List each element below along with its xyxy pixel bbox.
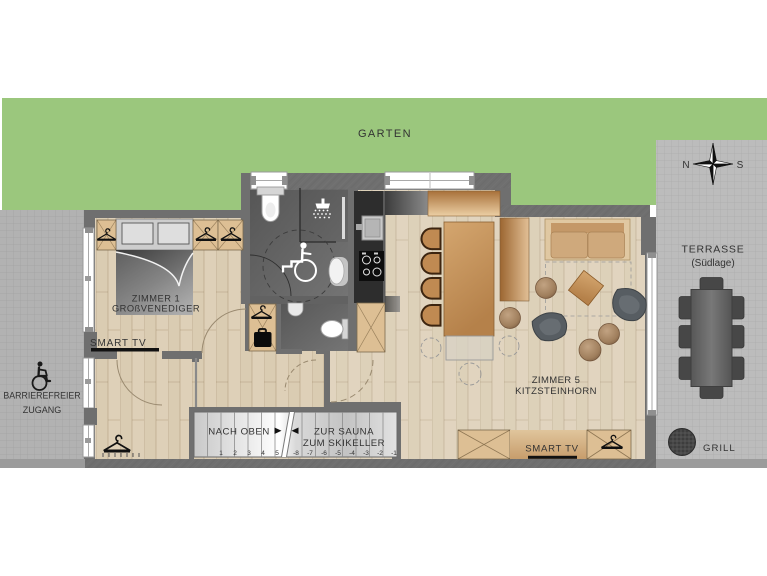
svg-text:TERRASSE: TERRASSE — [682, 244, 745, 256]
svg-text:-4: -4 — [349, 450, 355, 457]
svg-text:ZUM SKIKELLER: ZUM SKIKELLER — [303, 438, 385, 449]
svg-text:-8: -8 — [293, 450, 299, 457]
svg-text:GRILL: GRILL — [703, 443, 736, 454]
svg-text:-3: -3 — [363, 450, 369, 457]
svg-text:SMART TV: SMART TV — [525, 444, 579, 455]
svg-text:-7: -7 — [307, 450, 313, 457]
svg-text:-5: -5 — [335, 450, 341, 457]
svg-text:ZUR SAUNA: ZUR SAUNA — [314, 427, 374, 438]
svg-text:ZIMMER 1: ZIMMER 1 — [132, 294, 180, 304]
svg-text:SMART TV: SMART TV — [90, 338, 146, 349]
svg-text:N: N — [682, 160, 689, 171]
svg-text:-2: -2 — [377, 450, 383, 457]
svg-text:4: 4 — [261, 450, 265, 457]
svg-text:ZUGANG: ZUGANG — [23, 405, 62, 415]
svg-text:-6: -6 — [321, 450, 327, 457]
svg-text:(Südlage): (Südlage) — [691, 258, 734, 269]
svg-text:1: 1 — [219, 450, 223, 457]
svg-text:BARRIEREFREIER: BARRIEREFREIER — [3, 391, 80, 401]
svg-text:3: 3 — [247, 450, 251, 457]
svg-text:S: S — [737, 160, 744, 171]
svg-text:KITZSTEINHORN: KITZSTEINHORN — [515, 386, 597, 397]
svg-text:-1: -1 — [391, 450, 397, 457]
svg-text:ZIMMER 5: ZIMMER 5 — [532, 375, 581, 386]
svg-text:2: 2 — [233, 450, 237, 457]
svg-text:GARTEN: GARTEN — [358, 128, 412, 140]
svg-text:5: 5 — [275, 450, 279, 457]
svg-text:NACH OBEN: NACH OBEN — [208, 427, 270, 438]
svg-text:GROßVENEDIGER: GROßVENEDIGER — [112, 304, 200, 314]
